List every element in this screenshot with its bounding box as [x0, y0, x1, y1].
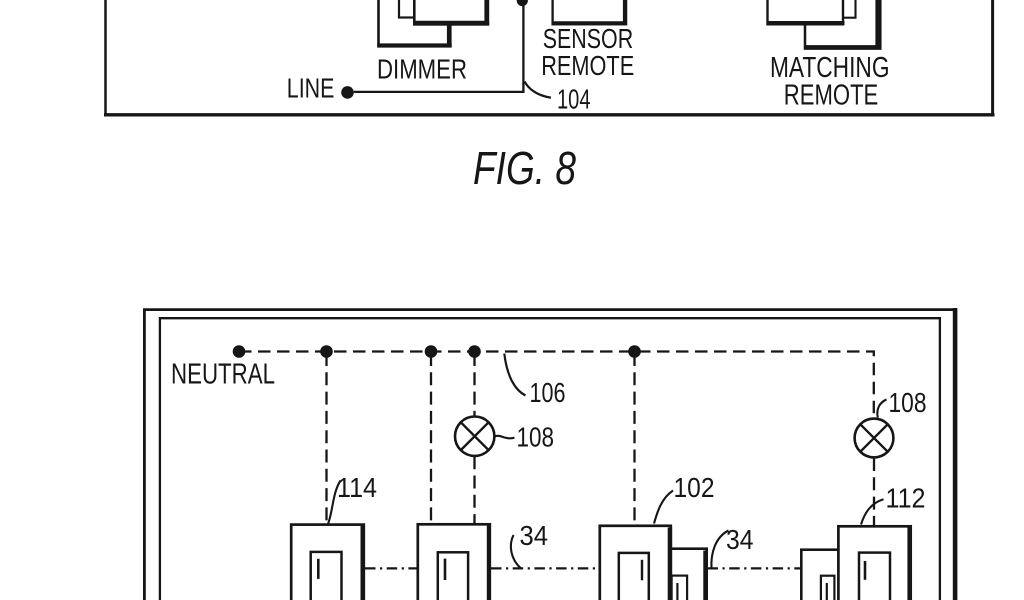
svg-text:108: 108 [889, 387, 927, 418]
svg-text:114: 114 [337, 472, 377, 503]
svg-text:104: 104 [557, 83, 591, 114]
svg-text:34: 34 [726, 524, 754, 555]
svg-text:NEUTRAL: NEUTRAL [171, 358, 275, 390]
svg-text:DIMMER: DIMMER [377, 54, 467, 85]
svg-text:112: 112 [886, 483, 926, 514]
svg-text:106: 106 [530, 377, 566, 408]
svg-text:REMOTE: REMOTE [541, 50, 634, 81]
svg-text:108: 108 [517, 422, 555, 453]
svg-text:REMOTE: REMOTE [784, 80, 879, 112]
svg-text:34: 34 [520, 520, 549, 551]
svg-text:FIG. 8: FIG. 8 [473, 142, 576, 194]
svg-text:102: 102 [674, 472, 715, 503]
svg-text:LINE: LINE [287, 73, 335, 104]
